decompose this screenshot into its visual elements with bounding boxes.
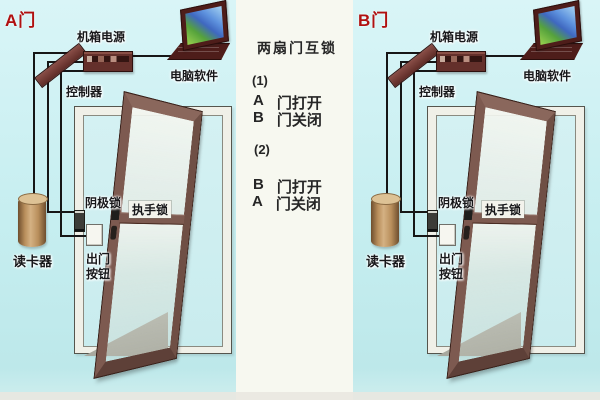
cathode-lock-label: 阴极锁	[85, 194, 121, 211]
cathode-lock-label: 阴极锁	[438, 194, 474, 211]
door-glass-upper	[474, 107, 546, 214]
exit-button-label: 出门 按钮	[439, 252, 463, 282]
notes-title: 两扇门互锁	[257, 38, 337, 58]
door-b-tag: B门	[358, 6, 389, 31]
wire-reader-vertical	[33, 52, 35, 199]
exit-button-label-line2: 按钮	[86, 267, 110, 282]
power-box-label: 机箱电源	[430, 28, 478, 45]
door-handle	[110, 226, 117, 240]
door-a-tag: A门	[5, 6, 36, 31]
exit-button-label: 出门 按钮	[86, 252, 110, 282]
power-box-label: 机箱电源	[77, 28, 125, 45]
wire-reader-vertical	[386, 52, 388, 199]
door-glass-upper	[121, 107, 193, 214]
door-b-section: B门 机箱电源 电脑软件 控制器	[353, 0, 600, 400]
software-label: 电脑软件	[170, 67, 218, 84]
case-1-number: (1)	[252, 73, 268, 88]
controller-label: 控制器	[66, 83, 102, 100]
exit-button-label-line2: 按钮	[439, 267, 463, 282]
exit-button-label-line1: 出门	[86, 252, 110, 267]
card-reader-device	[18, 197, 46, 247]
exit-button-label-line1: 出门	[439, 252, 463, 267]
card-reader-label: 读卡器	[366, 251, 405, 270]
case-2-line-2-state: 门关闭	[276, 193, 321, 214]
wire-button-vertical	[413, 70, 415, 237]
diagram-stage: A门 机箱电源 电脑软件 控制器	[0, 0, 600, 400]
controller-label: 控制器	[419, 83, 455, 100]
handle-lock-label: 执手锁	[129, 201, 171, 218]
card-reader-label: 读卡器	[13, 251, 52, 270]
case-1-line-2-state: 门关闭	[277, 109, 322, 130]
wire-button-vertical	[60, 70, 62, 237]
door-glass-lower	[106, 224, 183, 362]
software-label: 电脑软件	[523, 67, 571, 84]
handle-lock-label: 执手锁	[482, 201, 524, 218]
door-handle	[463, 226, 470, 240]
door-a-section: A门 机箱电源 电脑软件 控制器	[0, 0, 236, 400]
photo-bottom-border	[0, 392, 600, 400]
card-reader-device	[371, 197, 399, 247]
case-1-line-2-door: B	[253, 109, 264, 130]
case-2-line-2: A门关闭	[252, 193, 321, 214]
laptop	[520, 3, 588, 63]
case-2-number: (2)	[254, 142, 270, 157]
power-box	[83, 51, 133, 72]
case-1-line-2: B门关闭	[253, 109, 322, 130]
door-glass-lower	[459, 224, 536, 362]
laptop-wallpaper	[538, 6, 576, 45]
case-2-line-2-door: A	[252, 193, 263, 214]
laptop	[167, 3, 235, 63]
laptop-wallpaper	[185, 6, 223, 45]
power-box	[436, 51, 486, 72]
interlock-notes-strip: 两扇门互锁 (1) A门打开 B门关闭 (2) B门打开 A门关闭	[236, 0, 353, 400]
